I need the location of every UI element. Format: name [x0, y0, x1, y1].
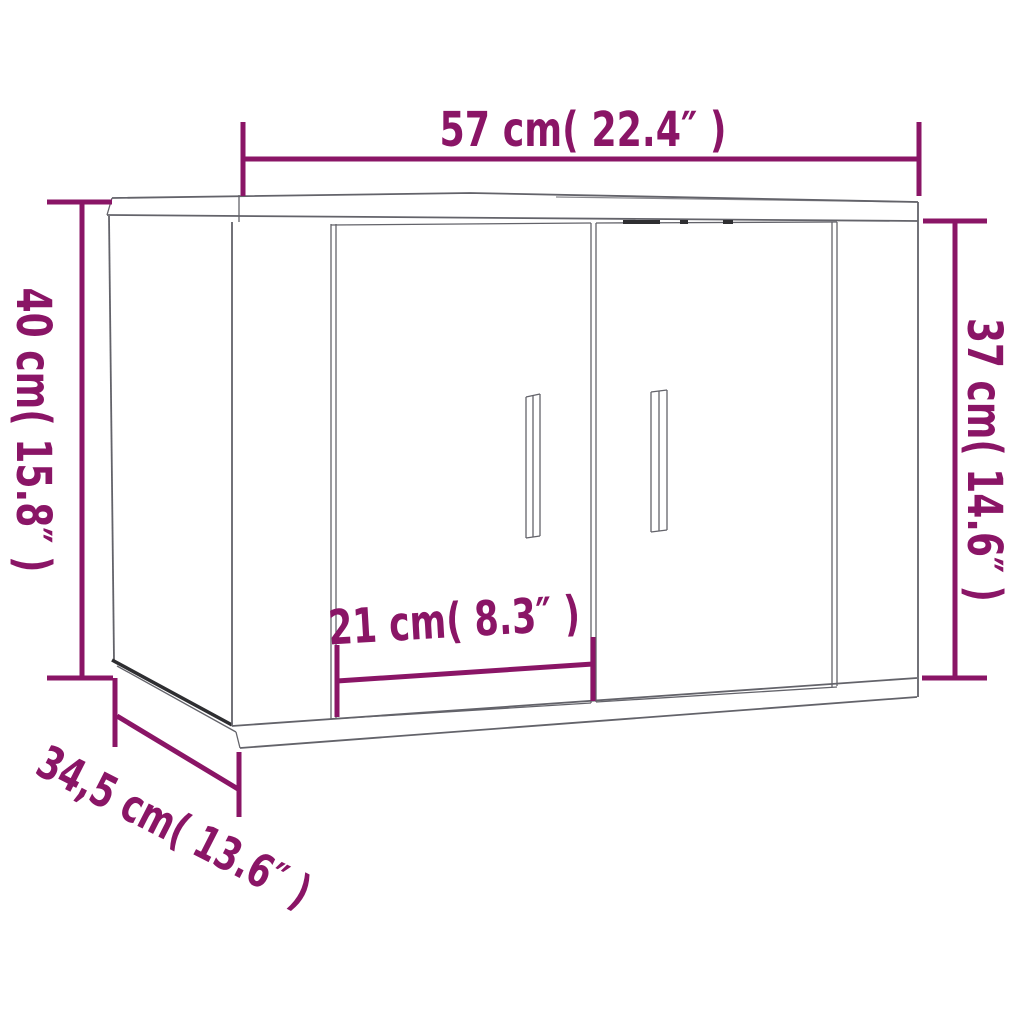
depth-dimension: 34,5 cm( 13.6″ ) — [28, 678, 320, 919]
door-width-dimension-label: 21 cm( 8.3″ ) — [327, 586, 582, 657]
left-door-handle — [526, 394, 540, 538]
diagram-svg: 57 cm( 22.4″ ) 40 cm( 15.8″ ) 37 cm( 14.… — [0, 0, 1024, 1024]
left-panel-edge — [109, 216, 114, 661]
left-panel-bottom-edge — [112, 660, 232, 725]
height-left-dimension-label: 40 cm( 15.8″ ) — [5, 288, 61, 573]
door-width-dimension: 21 cm( 8.3″ ) — [327, 586, 593, 717]
height-right-dimension: 37 cm( 14.6″ ) — [922, 221, 1012, 678]
cabinet-left-panel — [109, 216, 240, 748]
door-width-dimension-line — [337, 664, 593, 681]
top-panel-bottom-edge — [107, 215, 918, 221]
bottom-front-corner-edge — [236, 732, 240, 748]
depth-dimension-label: 34,5 cm( 13.6″ ) — [28, 735, 320, 919]
left-door-top-edge — [331, 223, 591, 225]
width-dimension-label: 57 cm( 22.4″ ) — [440, 102, 727, 158]
width-dimension: 57 cm( 22.4″ ) — [243, 102, 919, 196]
cabinet-dimension-diagram: 57 cm( 22.4″ ) 40 cm( 15.8″ ) 37 cm( 14.… — [0, 0, 1024, 1024]
height-right-dimension-label: 37 cm( 14.6″ ) — [956, 318, 1012, 602]
right-door — [596, 222, 837, 702]
cabinet-drawing — [107, 193, 918, 748]
left-panel-bottom-inner-edge — [117, 666, 236, 732]
door-divider — [591, 223, 596, 703]
bottom-face-front-edge — [240, 697, 917, 748]
right-door-handle — [651, 390, 667, 532]
height-left-dimension: 40 cm( 15.8″ ) — [5, 202, 113, 678]
right-door-bottom-edge — [596, 687, 837, 702]
cabinet-top-panel — [107, 193, 918, 222]
